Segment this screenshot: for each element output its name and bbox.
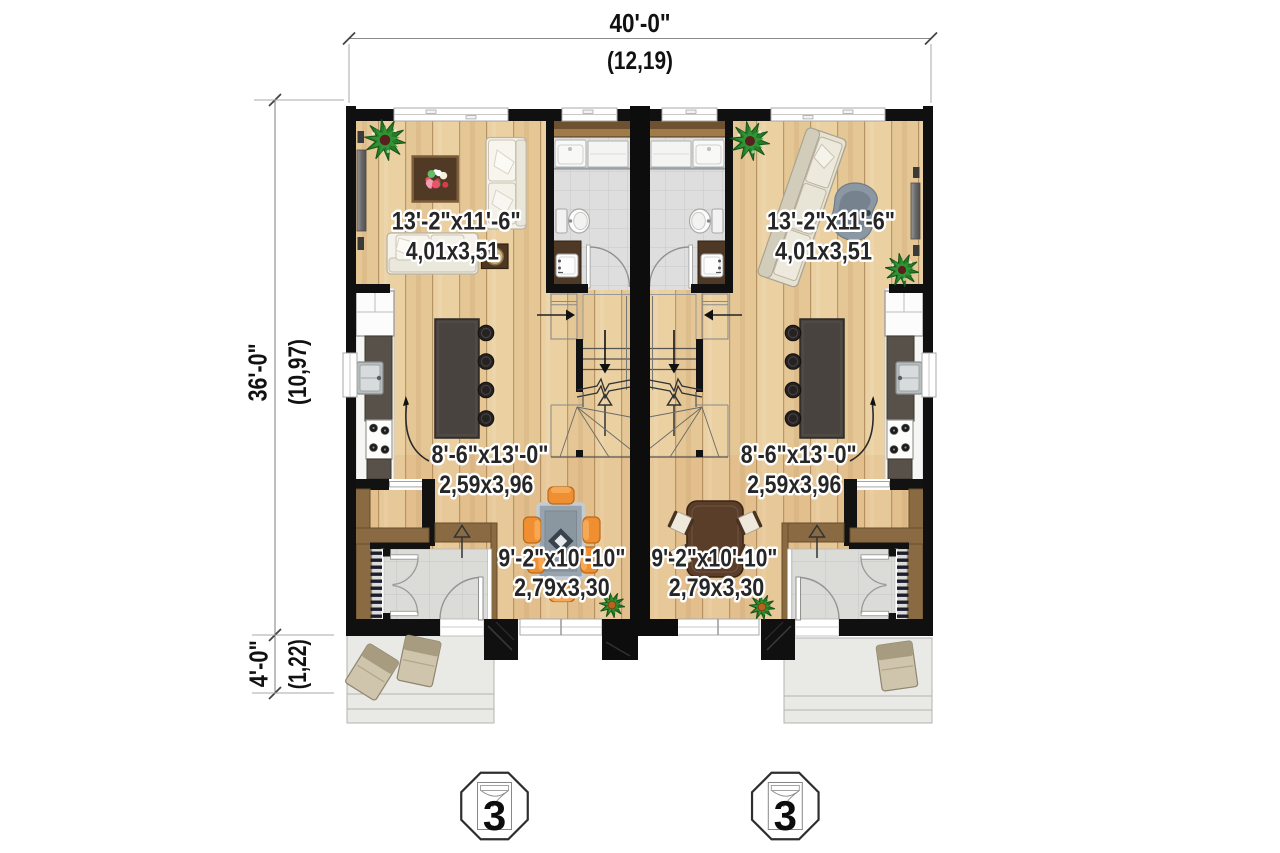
svg-text:3: 3 xyxy=(774,792,797,839)
svg-text:4,01x3,51: 4,01x3,51 xyxy=(775,238,872,266)
svg-text:40'-0": 40'-0" xyxy=(610,8,671,38)
svg-text:36'-0": 36'-0" xyxy=(243,343,273,401)
svg-text:(12,19): (12,19) xyxy=(607,47,673,75)
svg-text:2,59x3,96: 2,59x3,96 xyxy=(747,471,841,499)
svg-text:13'-2"x11'-6": 13'-2"x11'-6" xyxy=(392,208,521,236)
svg-text:4'-0": 4'-0" xyxy=(244,640,274,687)
svg-text:2,79x3,30: 2,79x3,30 xyxy=(514,574,610,602)
svg-text:3: 3 xyxy=(483,792,506,839)
svg-text:13'-2"x11'-6": 13'-2"x11'-6" xyxy=(767,208,895,236)
svg-text:(1,22): (1,22) xyxy=(284,639,312,689)
svg-text:8'-6"x13'-0": 8'-6"x13'-0" xyxy=(432,441,549,469)
svg-text:2,79x3,30: 2,79x3,30 xyxy=(669,574,765,602)
svg-text:2,59x3,96: 2,59x3,96 xyxy=(439,471,533,499)
svg-text:9'-2"x10'-10": 9'-2"x10'-10" xyxy=(498,545,625,573)
svg-text:4,01x3,51: 4,01x3,51 xyxy=(406,238,499,266)
svg-text:8'-6"x13'-0": 8'-6"x13'-0" xyxy=(741,441,857,469)
svg-text:(10,97): (10,97) xyxy=(284,339,312,405)
svg-text:9'-2"x10'-10": 9'-2"x10'-10" xyxy=(651,545,777,573)
